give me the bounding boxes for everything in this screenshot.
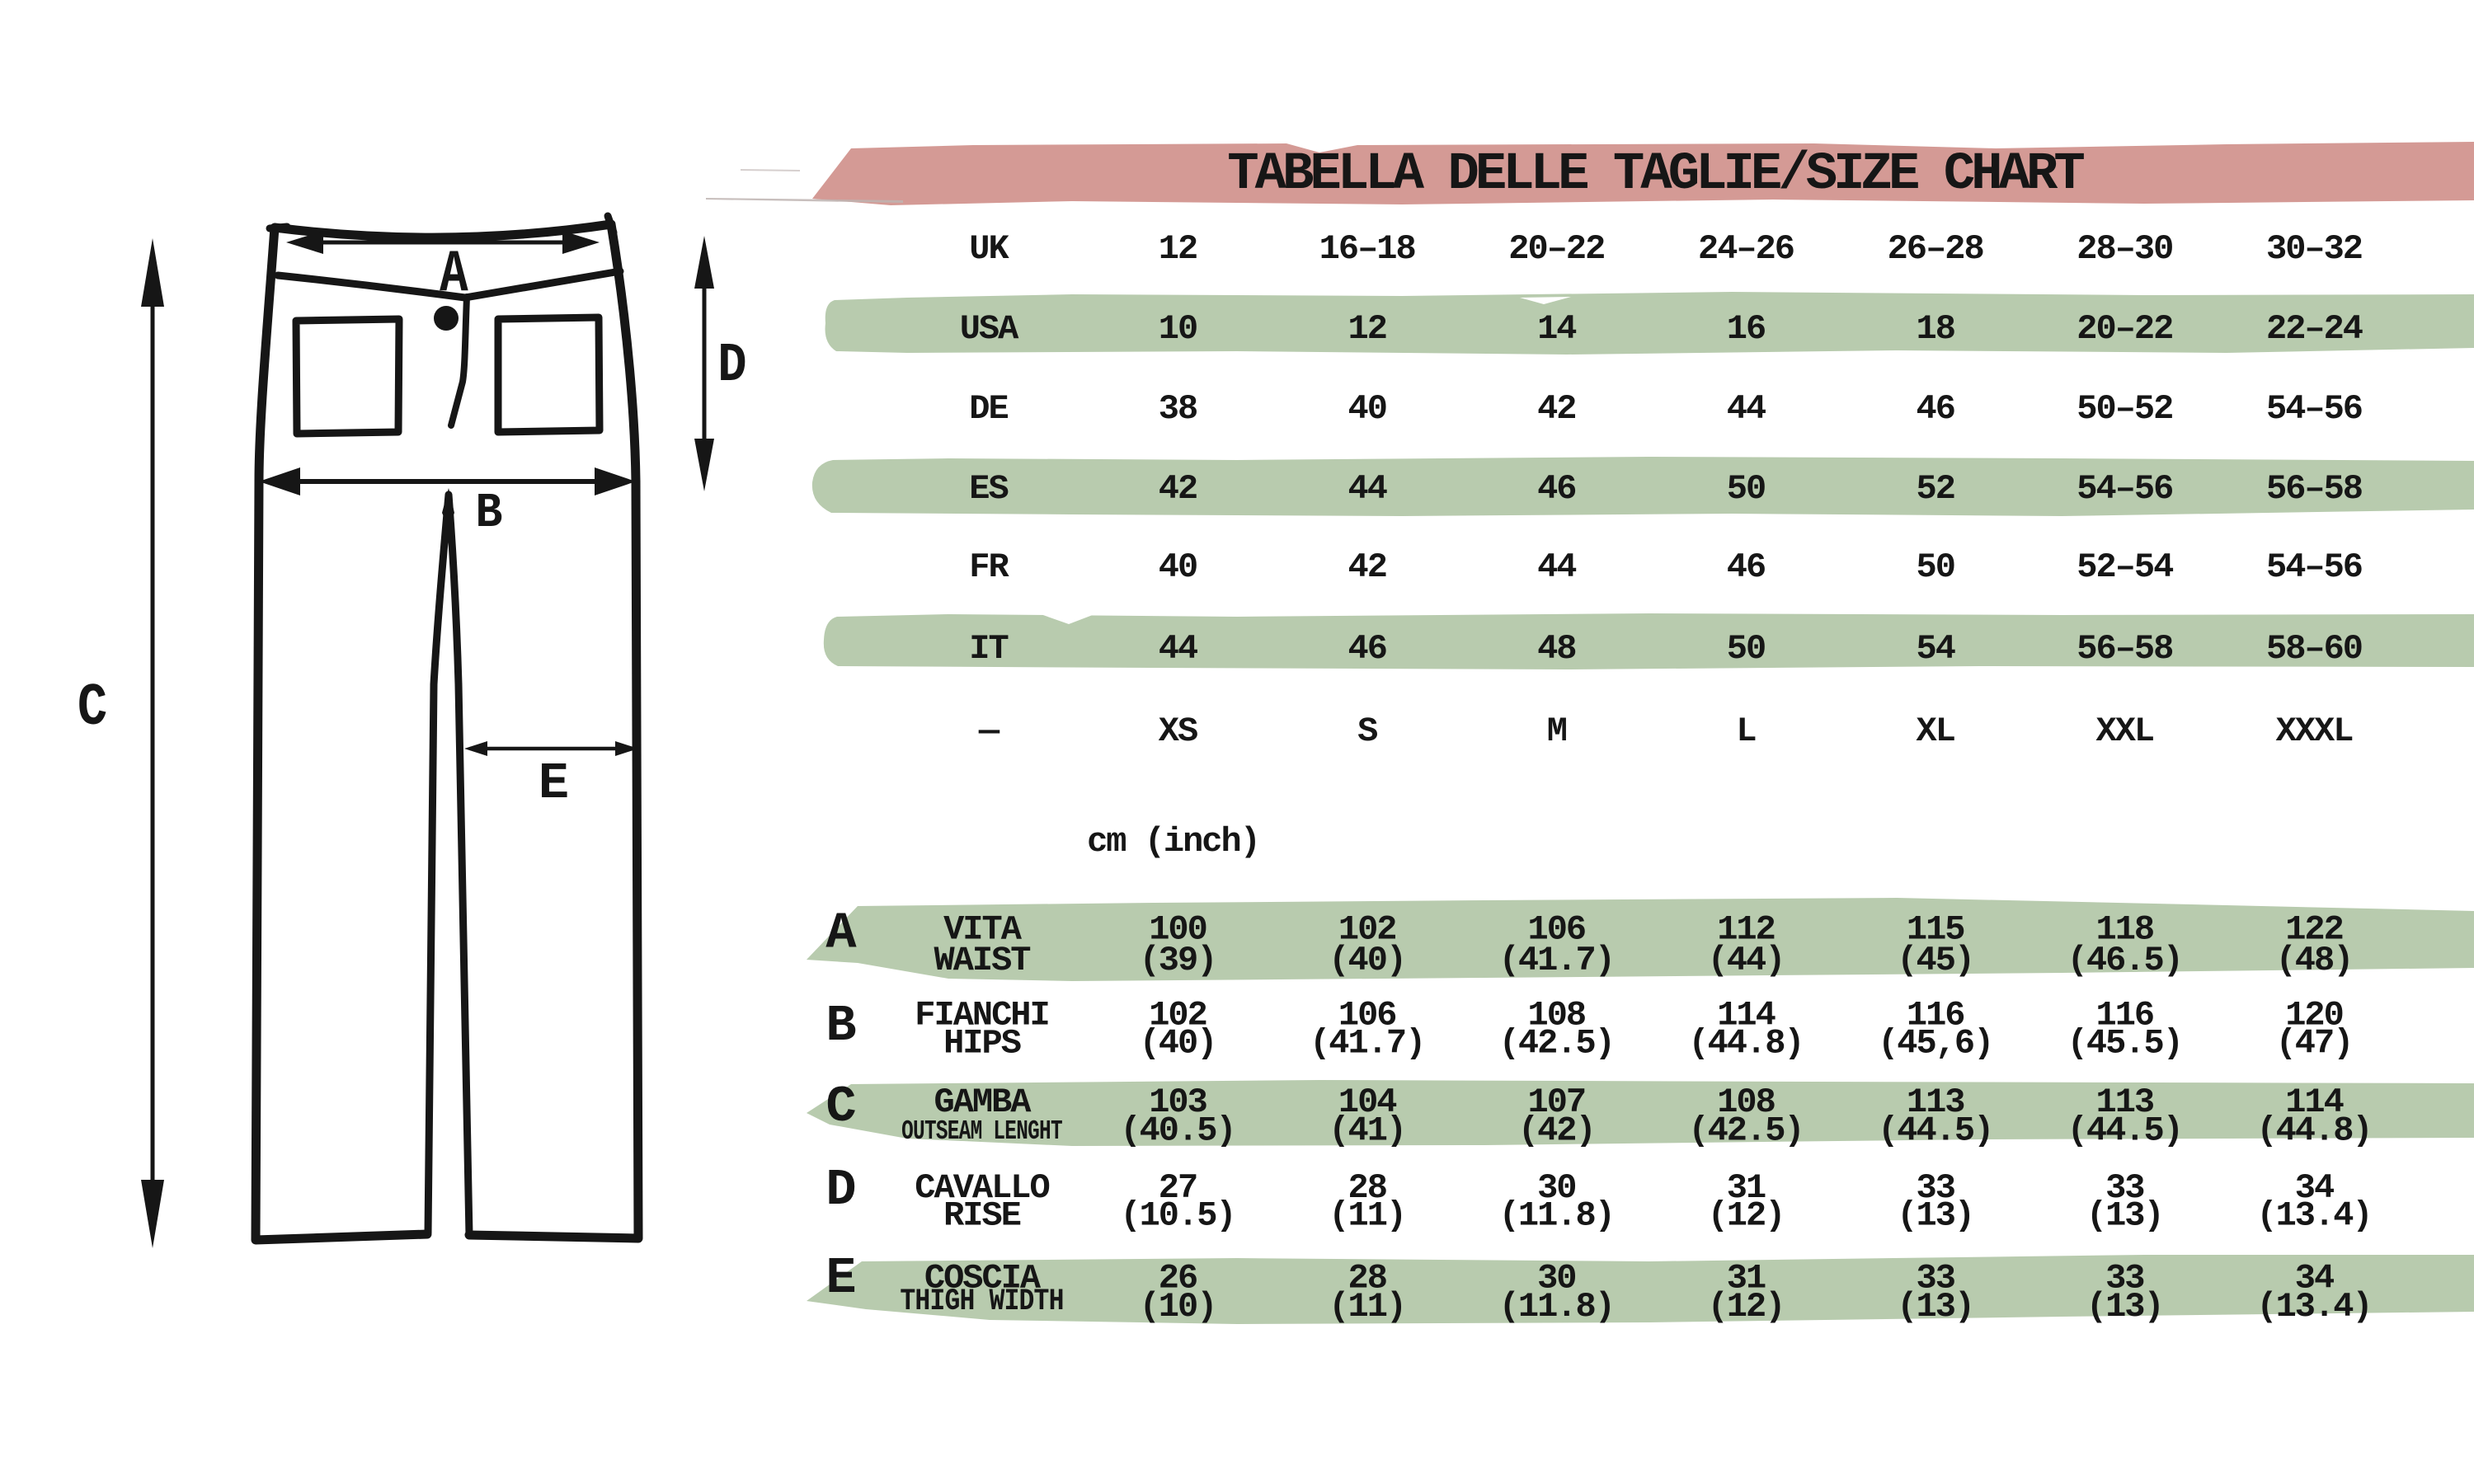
svg-text:52–54: 52–54 <box>2077 547 2173 587</box>
svg-text:(46.5): (46.5) <box>2067 941 2182 980</box>
svg-text:56–58: 56–58 <box>2266 469 2362 509</box>
svg-text:(40): (40) <box>1140 1024 1216 1064</box>
svg-text:56–58: 56–58 <box>2077 629 2172 669</box>
svg-text:22–24: 22–24 <box>2266 309 2363 349</box>
svg-text:16: 16 <box>1727 309 1765 349</box>
svg-text:42: 42 <box>1159 469 1197 509</box>
svg-text:(41.7): (41.7) <box>1499 941 1614 980</box>
svg-text:—: — <box>978 711 1000 751</box>
svg-text:(39): (39) <box>1140 941 1216 980</box>
svg-text:(41.7): (41.7) <box>1310 1024 1424 1064</box>
svg-text:40: 40 <box>1348 389 1385 429</box>
svg-text:(48): (48) <box>2276 941 2353 980</box>
svg-text:54–56: 54–56 <box>2266 547 2362 587</box>
svg-text:44: 44 <box>1537 547 1576 587</box>
svg-text:(40.5): (40.5) <box>1120 1111 1235 1151</box>
svg-text:XS: XS <box>1159 711 1197 751</box>
svg-text:(11.8): (11.8) <box>1499 1196 1614 1236</box>
svg-text:M: M <box>1547 711 1567 751</box>
svg-text:(45,6): (45,6) <box>1878 1024 1992 1064</box>
svg-text:D: D <box>825 1161 856 1219</box>
svg-text:(13): (13) <box>1897 1196 1973 1236</box>
svg-text:14: 14 <box>1537 309 1576 349</box>
svg-text:(45.5): (45.5) <box>2067 1024 2182 1064</box>
svg-text:A: A <box>825 904 857 962</box>
svg-text:(42): (42) <box>1518 1111 1595 1151</box>
svg-text:42: 42 <box>1348 547 1385 587</box>
svg-text:(45): (45) <box>1897 941 1973 980</box>
svg-text:D: D <box>717 334 746 397</box>
svg-text:C: C <box>825 1078 856 1136</box>
svg-text:(44.5): (44.5) <box>1878 1111 1992 1151</box>
svg-text:(10): (10) <box>1140 1287 1216 1327</box>
svg-text:(13): (13) <box>1897 1287 1973 1327</box>
svg-text:54–56: 54–56 <box>2077 469 2172 509</box>
svg-text:12: 12 <box>1159 229 1197 269</box>
svg-text:(11): (11) <box>1329 1287 1405 1327</box>
svg-text:50: 50 <box>1727 469 1765 509</box>
svg-text:UK: UK <box>969 229 1009 269</box>
svg-text:(12): (12) <box>1708 1287 1785 1327</box>
svg-text:(13): (13) <box>2086 1196 2163 1236</box>
svg-text:38: 38 <box>1159 389 1197 429</box>
svg-text:46: 46 <box>1348 629 1385 669</box>
svg-text:50–52: 50–52 <box>2077 389 2172 429</box>
svg-text:40: 40 <box>1159 547 1197 587</box>
svg-text:(41): (41) <box>1329 1111 1405 1151</box>
svg-text:WAIST: WAIST <box>934 941 1030 980</box>
svg-text:10: 10 <box>1159 309 1197 349</box>
svg-text:(11.8): (11.8) <box>1499 1287 1614 1327</box>
svg-text:(12): (12) <box>1708 1196 1785 1236</box>
svg-text:(10.5): (10.5) <box>1120 1196 1235 1236</box>
svg-text:(42.5): (42.5) <box>1499 1024 1614 1064</box>
svg-text:A: A <box>440 241 468 308</box>
svg-text:(13.4): (13.4) <box>2256 1196 2371 1236</box>
svg-text:B: B <box>476 486 503 541</box>
svg-text:30–32: 30–32 <box>2266 229 2362 269</box>
svg-text:50: 50 <box>1916 547 1954 587</box>
svg-text:(40): (40) <box>1329 941 1405 980</box>
svg-text:C: C <box>78 674 107 741</box>
svg-text:USA: USA <box>960 309 1019 349</box>
svg-text:44: 44 <box>1727 389 1766 429</box>
svg-text:44: 44 <box>1159 629 1197 669</box>
svg-text:48: 48 <box>1537 629 1575 669</box>
svg-text:28–30: 28–30 <box>2077 229 2172 269</box>
svg-text:IT: IT <box>969 629 1008 669</box>
svg-text:20–22: 20–22 <box>2077 309 2172 349</box>
svg-text:(47): (47) <box>2276 1024 2353 1064</box>
svg-text:HIPS: HIPS <box>943 1024 1021 1064</box>
svg-text:16–18: 16–18 <box>1319 229 1415 269</box>
svg-text:XXL: XXL <box>2095 711 2153 751</box>
svg-text:12: 12 <box>1348 309 1385 349</box>
svg-text:42: 42 <box>1537 389 1575 429</box>
svg-text:(44.5): (44.5) <box>2067 1111 2182 1151</box>
svg-text:cm (inch): cm (inch) <box>1087 822 1259 862</box>
svg-text:B: B <box>825 997 856 1055</box>
svg-text:18: 18 <box>1916 309 1954 349</box>
svg-text:DE: DE <box>969 389 1008 429</box>
svg-text:24–26: 24–26 <box>1698 229 1794 269</box>
svg-text:THIGH WIDTH: THIGH WIDTH <box>900 1284 1063 1319</box>
svg-text:OUTSEAM LENGHT: OUTSEAM LENGHT <box>901 1116 1062 1148</box>
svg-text:58–60: 58–60 <box>2266 629 2362 669</box>
svg-text:52: 52 <box>1916 469 1954 509</box>
svg-text:54: 54 <box>1916 629 1954 669</box>
svg-text:46: 46 <box>1916 389 1954 429</box>
svg-text:(11): (11) <box>1329 1196 1405 1236</box>
svg-text:(44.8): (44.8) <box>2256 1111 2371 1151</box>
svg-text:(42.5): (42.5) <box>1688 1111 1803 1151</box>
svg-text:L: L <box>1736 711 1756 751</box>
svg-text:(44): (44) <box>1708 941 1785 980</box>
svg-text:46: 46 <box>1727 547 1765 587</box>
svg-text:XXXL: XXXL <box>2276 711 2354 751</box>
svg-text:ES: ES <box>969 469 1008 509</box>
svg-text:46: 46 <box>1537 469 1575 509</box>
svg-text:(13.4): (13.4) <box>2256 1287 2371 1327</box>
svg-text:E: E <box>539 754 569 813</box>
svg-text:20–22: 20–22 <box>1508 229 1604 269</box>
svg-text:50: 50 <box>1727 629 1765 669</box>
svg-text:E: E <box>825 1249 856 1308</box>
svg-text:54–56: 54–56 <box>2266 389 2362 429</box>
svg-text:TABELLA DELLE TAGLIE/SIZE CHAR: TABELLA DELLE TAGLIE/SIZE CHART <box>1227 145 2084 204</box>
svg-text:(44.8): (44.8) <box>1688 1024 1803 1064</box>
svg-text:FR: FR <box>969 547 1009 587</box>
svg-text:RISE: RISE <box>943 1196 1021 1236</box>
svg-text:S: S <box>1357 711 1377 751</box>
svg-text:(13): (13) <box>2086 1287 2163 1327</box>
svg-text:44: 44 <box>1348 469 1386 509</box>
svg-text:XL: XL <box>1916 711 1954 751</box>
svg-text:26–28: 26–28 <box>1888 229 1983 269</box>
